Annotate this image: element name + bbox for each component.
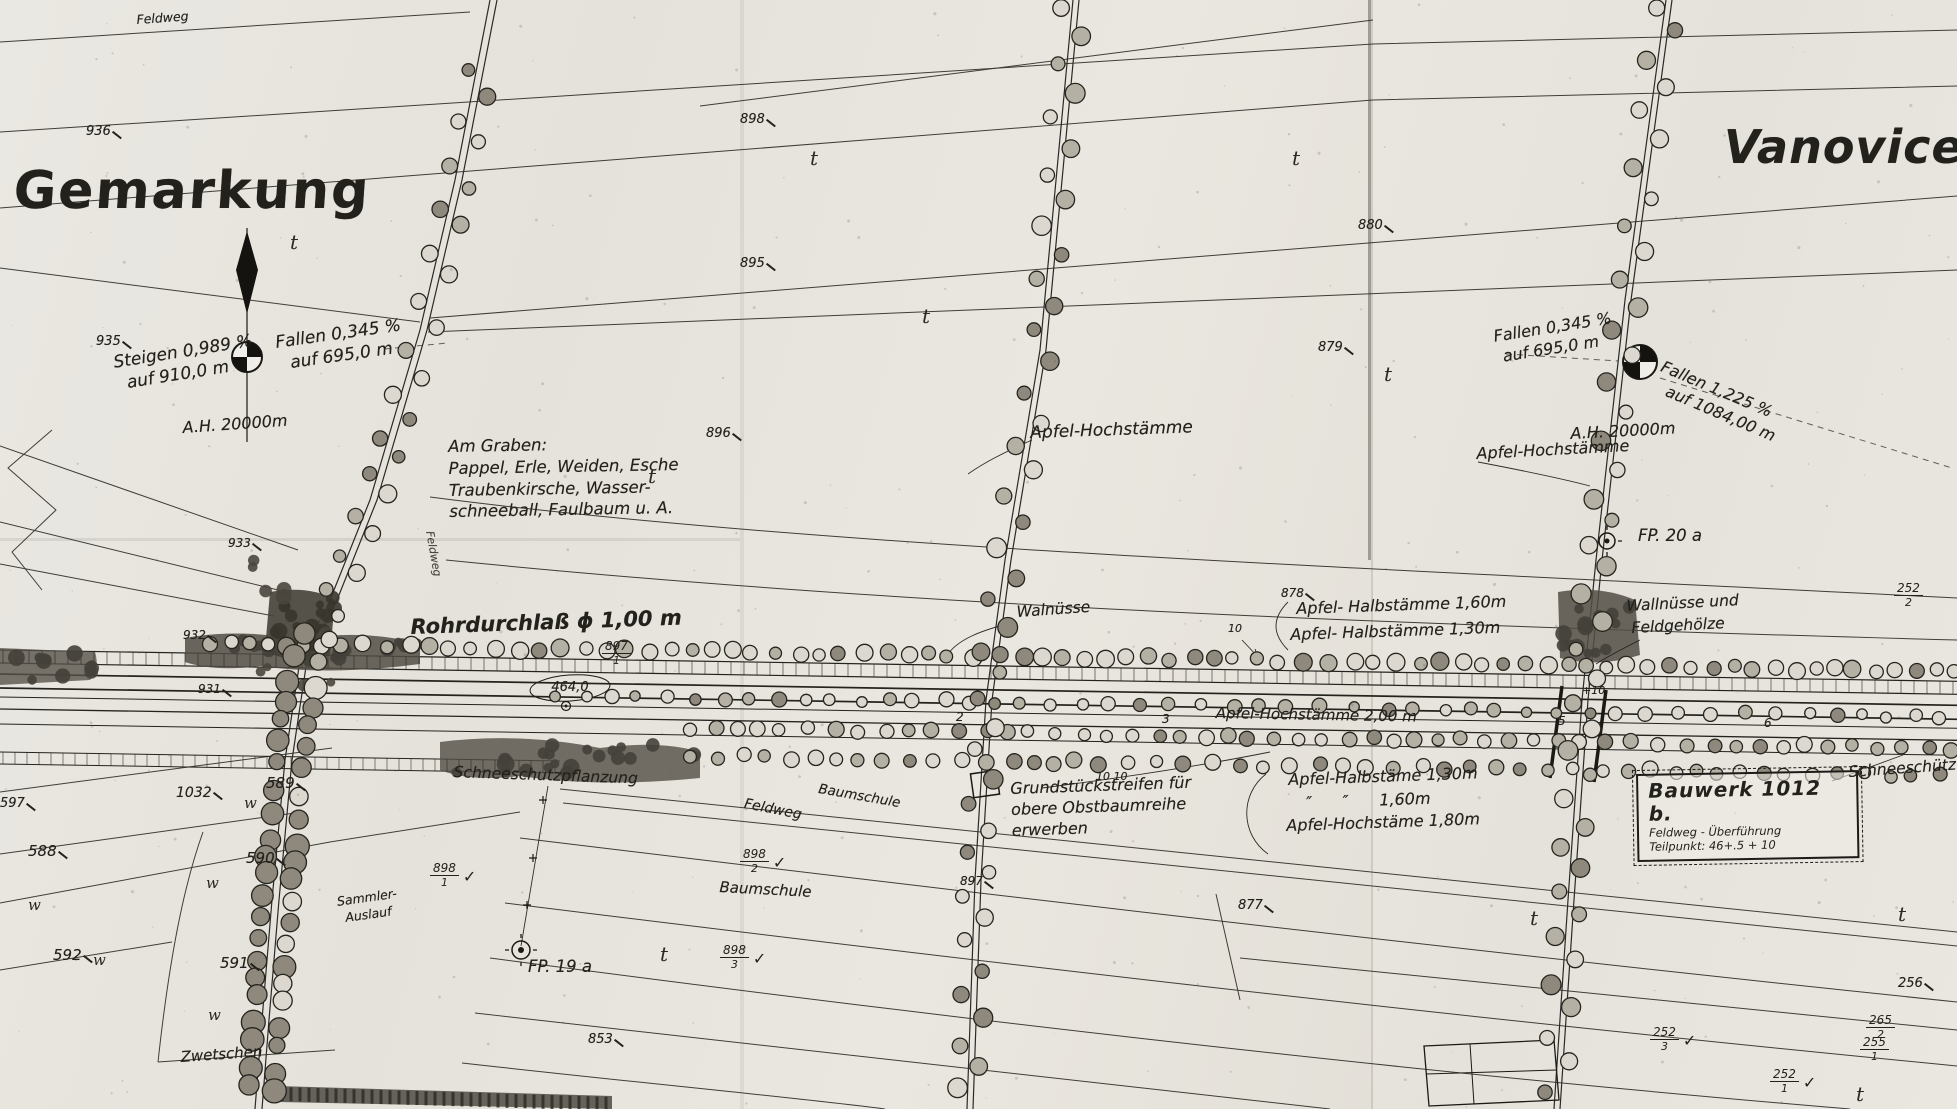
landuse-symbol-t: t [1856,1082,1864,1106]
fraction-numerator: 252 [1650,1026,1679,1040]
landuse-symbol-t: t [648,464,656,488]
parcel-fraction: 252 1 ✓ [1770,1068,1799,1094]
check-mark: ✓ [1803,1075,1816,1091]
parcel-number: 256 [1898,976,1937,993]
fraction-denominator: 3 [720,958,749,970]
parcel-number: 588 [28,842,71,862]
parcel-fraction: 897 1 [602,640,631,666]
fraction-numerator: 898 [720,944,749,958]
parcel-number: 895 [740,256,779,273]
bauwerk-title: Bauwerk 1012 b. [1648,776,1847,825]
parcel-number: 853 [588,1032,627,1049]
check-mark: ✓ [773,855,786,871]
parcel-number: 932 [183,628,220,644]
parcel-number: 896 [706,426,745,443]
station-value-464: 464,0 [542,680,598,697]
region-title-gemarkung: Gemarkung [11,158,372,226]
landuse-symbol-t: t [1292,146,1300,170]
bauwerk-info-box: Bauwerk 1012 b. Feldweg - Überführung Te… [1636,770,1859,862]
fraction-denominator: 3 [1650,1040,1679,1052]
parcel-number: 589 [266,774,309,794]
fraction-numerator: 252 [1770,1068,1799,1082]
count-label-10: 10 [1228,622,1242,636]
landuse-symbol-t: t [1384,362,1392,386]
landuse-symbol-w: w [208,1006,221,1024]
landuse-symbol-w: w [244,794,257,812]
landuse-symbol-w: w [28,896,41,914]
station-number-3: 3 [1162,712,1170,728]
parcel-fraction: 898 3 ✓ [720,944,749,970]
parcel-number: 591 [220,954,263,974]
fraction-denominator: 1 [602,654,631,666]
planting-label-hochstaemme-200: Apfel-Hochstämme 2,00 m [1216,704,1417,727]
north-kite-icon [236,231,258,314]
parcel-number: 898 [740,112,779,129]
check-mark: ✓ [463,869,476,885]
parcel-number: 933 [228,536,265,552]
parcel-fraction: 898 1 ✓ [430,862,459,888]
parcel-number: 897 [960,874,997,890]
parcel-number: 1032 [176,784,226,802]
bauwerk-station: Teilpunkt: 46+.5 + 10 [1649,837,1847,855]
landuse-symbol-t: t [810,146,818,170]
fixpoint-label-fp20: FP. 20 a [1638,525,1702,546]
landuse-symbol-w: w [93,951,106,969]
parcel-fraction: 255 1 [1860,1036,1889,1062]
fraction-numerator: 255 [1860,1036,1889,1050]
region-title-vanovice: Vanovice [1724,118,1957,178]
note-am-graben: Am Graben: Pappel, Erle, Weiden, Esche T… [448,432,679,523]
station-number-5: 5 [1558,714,1566,730]
landuse-symbol-t: t [1898,902,1906,926]
landuse-symbol-t: t [922,304,930,328]
check-mark: ✓ [753,951,766,967]
parcel-number: 877 [1238,898,1277,915]
fraction-denominator: 1 [430,876,459,888]
parcel-fraction: 252 3 ✓ [1650,1026,1679,1052]
landuse-symbol-t: t [290,230,298,254]
parcel-fraction: 252 2 [1894,582,1923,608]
note-grundstueckstreifen: Grundstückstreifen für obere Obstbaumrei… [1010,772,1193,842]
parcel-fraction: 898 2 ✓ [740,848,769,874]
parcel-number: 592 [53,946,96,966]
parcel-number: 879 [1318,340,1357,357]
station-number-6: 6 [1764,716,1772,732]
fraction-numerator: 898 [430,862,459,876]
parcel-number: 931 [198,682,235,698]
parcel-number: 590 [246,849,289,869]
fraction-numerator: 898 [740,848,769,862]
fraction-denominator: 2 [740,862,769,874]
map-sheet: Feldweg 936 Gemarkung Vanovice 935 Steig… [0,0,1957,1109]
note-line: schneeball, Faulbaum u. A. [449,497,679,523]
fixpoint-label-fp19: FP. 19 a [528,956,592,977]
station-offset-plus10: +10 [1582,684,1605,698]
fraction-denominator: 2 [1894,596,1923,608]
landuse-symbol-t: t [1530,906,1538,930]
fraction-numerator: 265 [1866,1014,1895,1028]
fraction-numerator: 252 [1894,582,1923,596]
fraction-denominator: 1 [1860,1050,1889,1062]
parcel-number: 880 [1358,218,1397,235]
fraction-denominator: 1 [1770,1082,1799,1094]
parcel-number: 936 [86,124,125,141]
parcel-number: 597 [0,796,39,813]
planting-label-ditto-160: ″ ″ 1,60m [1306,789,1431,814]
fraction-numerator: 897 [602,640,631,654]
landuse-symbol-t: t [660,942,668,966]
check-mark: ✓ [1683,1033,1696,1049]
landuse-symbol-w: w [206,874,219,892]
station-number-2: 2 [956,710,964,726]
